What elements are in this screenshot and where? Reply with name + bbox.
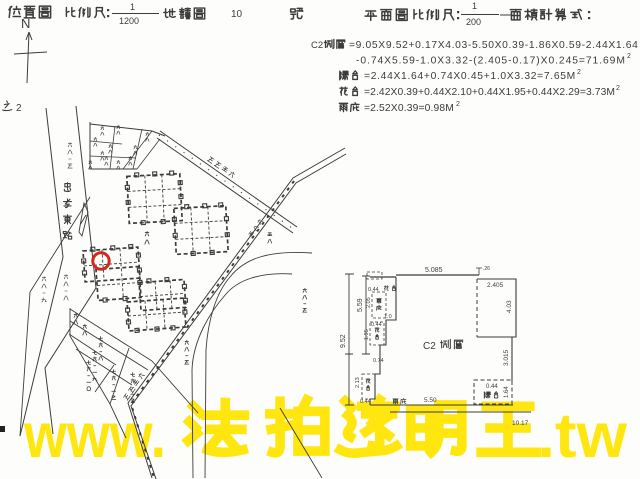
svg-text:.tw: .tw (537, 401, 628, 471)
svg-text:4.03: 4.03 (506, 300, 513, 313)
svg-text:N: N (21, 16, 30, 31)
svg-text:0.74: 0.74 (373, 358, 384, 364)
svg-text:=9.05X9.52+0.17X4.03-5.50X0.39: =9.05X9.52+0.17X4.03-5.50X0.39-1.86X0.59… (349, 40, 639, 51)
svg-text:1.64: 1.64 (504, 386, 510, 398)
svg-text:10: 10 (231, 9, 243, 20)
svg-text:10.17: 10.17 (512, 420, 529, 427)
svg-text:5.50: 5.50 (424, 397, 437, 404)
svg-text:2: 2 (577, 69, 581, 76)
svg-text:0.44: 0.44 (360, 399, 371, 405)
svg-text:=2.52X0.39=0.98M: =2.52X0.39=0.98M (364, 103, 454, 114)
svg-text:-0.74X5.59-1.0X3.32-(2.405-0.1: -0.74X5.59-1.0X3.32-(2.405-0.17)X0.245=7… (356, 56, 626, 67)
svg-text:=2.42X0.39+0.44X2.10+0.44X1.95: =2.42X0.39+0.44X2.10+0.44X1.95+0.44X2.29… (364, 87, 615, 98)
svg-text:2.13: 2.13 (355, 377, 361, 388)
svg-text:C2: C2 (423, 341, 436, 352)
svg-text:=2.44X1.64+0.74X0.45+1.0X3.32=: =2.44X1.64+0.74X0.45+1.0X3.32=7.65M (364, 71, 576, 82)
svg-text:3.015: 3.015 (503, 349, 510, 366)
svg-text:0.44: 0.44 (371, 322, 382, 328)
svg-text:1: 1 (130, 2, 135, 12)
svg-text:200: 200 (466, 17, 481, 27)
svg-text:9.52: 9.52 (340, 334, 347, 348)
svg-text:2: 2 (627, 53, 631, 60)
svg-text:0.44: 0.44 (368, 287, 379, 293)
svg-text:C2: C2 (311, 40, 323, 51)
svg-text:1: 1 (472, 1, 477, 11)
svg-text:5.085: 5.085 (425, 267, 443, 274)
svg-text:1.95: 1.95 (364, 329, 370, 340)
svg-text:.26: .26 (483, 266, 490, 272)
svg-text:2: 2 (616, 85, 620, 92)
svg-text:1200: 1200 (119, 16, 139, 26)
svg-text:2: 2 (16, 103, 22, 114)
svg-text:2: 2 (456, 101, 460, 108)
svg-text:www.: www. (23, 401, 166, 471)
svg-text:0.44: 0.44 (486, 384, 498, 390)
svg-text:5.59: 5.59 (357, 298, 364, 312)
svg-text:2.405: 2.405 (487, 282, 504, 289)
svg-text:2.05: 2.05 (366, 297, 372, 308)
svg-text:1.0: 1.0 (384, 314, 392, 320)
